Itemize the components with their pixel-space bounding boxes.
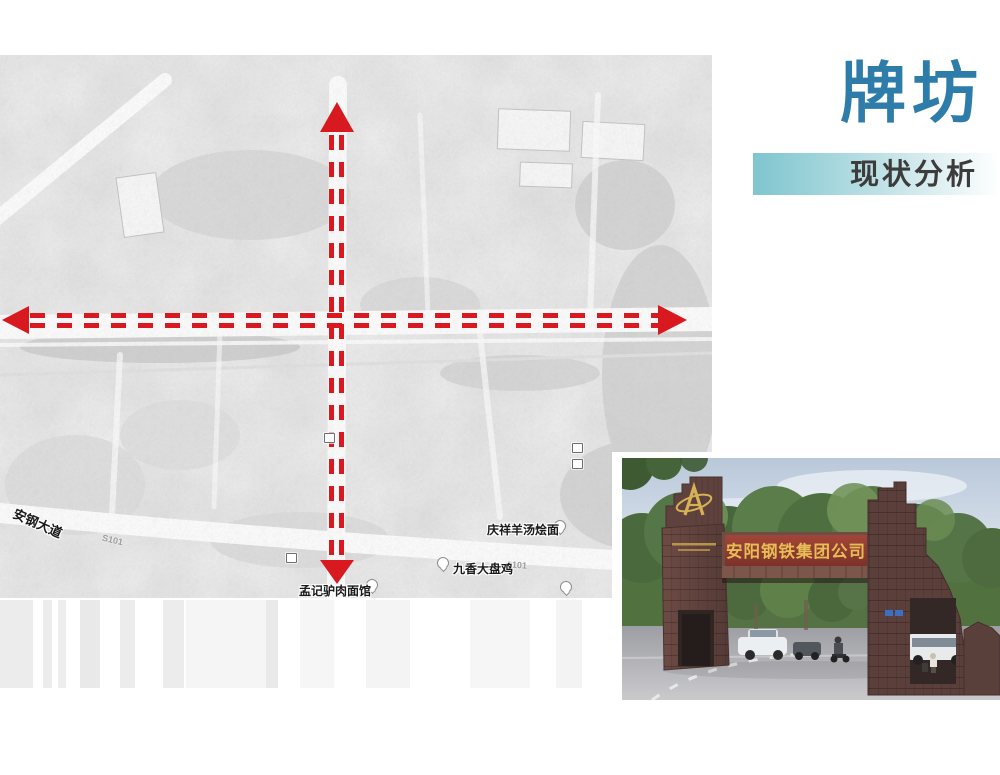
right-wing-wall	[964, 622, 1000, 695]
stripe	[186, 600, 266, 688]
blue-sign-icon	[895, 610, 903, 616]
map-marker-icon	[572, 443, 583, 453]
pillar-gold-text-line	[672, 543, 716, 546]
axis-arrow-down-icon	[320, 560, 354, 584]
stripe	[80, 600, 100, 688]
axis-arrow-up-icon	[320, 102, 354, 132]
faded-stripe-band	[0, 600, 622, 688]
page-title: 牌坊	[840, 62, 984, 128]
map-marker-icon	[572, 459, 583, 469]
map-pin-icon	[560, 581, 572, 593]
stripe	[556, 600, 582, 688]
stripe	[300, 600, 334, 688]
axis-line-horizontal	[30, 313, 658, 328]
gate-beam: 安阳钢铁集团公司	[722, 532, 870, 583]
map-pin-icon	[437, 557, 449, 569]
gate-photo-art: 安阳钢铁集团公司	[622, 458, 1000, 700]
axis-arrow-right-icon	[658, 305, 687, 335]
left-pillar	[662, 477, 729, 670]
subtitle-band: 现状分析	[753, 153, 1000, 195]
stripe	[120, 600, 135, 688]
axis-dash-row	[30, 313, 658, 318]
axis-dash-col	[339, 135, 344, 557]
poi-label-qingxiang: 庆祥羊汤烩面	[487, 521, 559, 538]
page-subtitle: 现状分析	[850, 153, 978, 195]
stripe	[163, 600, 184, 688]
poi-label-mengji: 孟记驴肉面馆	[299, 582, 371, 598]
axis-arrow-left-icon	[2, 306, 29, 334]
sign-text: 安阳钢铁集团公司	[726, 541, 866, 561]
gate-photo: 安阳钢铁集团公司	[622, 458, 1000, 700]
site-map: 安钢大道 S101 S101 庆祥羊汤烩面 九香大盘鸡 孟记驴肉面馆	[0, 55, 712, 598]
map-marker-icon	[324, 433, 335, 443]
stripe	[0, 600, 33, 688]
blue-sign-icon	[885, 610, 893, 616]
axis-dash-row	[30, 323, 658, 328]
stripe	[266, 600, 278, 688]
stripe	[366, 600, 410, 688]
slide: 安钢大道 S101 S101 庆祥羊汤烩面 九香大盘鸡 孟记驴肉面馆 牌坊 现状…	[0, 0, 1000, 775]
axis-line-vertical	[329, 135, 344, 557]
poi-label-dapanji: 九香大盘鸡	[453, 560, 513, 577]
map-marker-icon	[286, 553, 297, 563]
pillar-gold-text-line	[678, 549, 710, 551]
axis-dash-col	[329, 135, 334, 557]
stripe	[58, 600, 66, 688]
stripe	[470, 600, 530, 688]
stripe	[43, 600, 52, 688]
